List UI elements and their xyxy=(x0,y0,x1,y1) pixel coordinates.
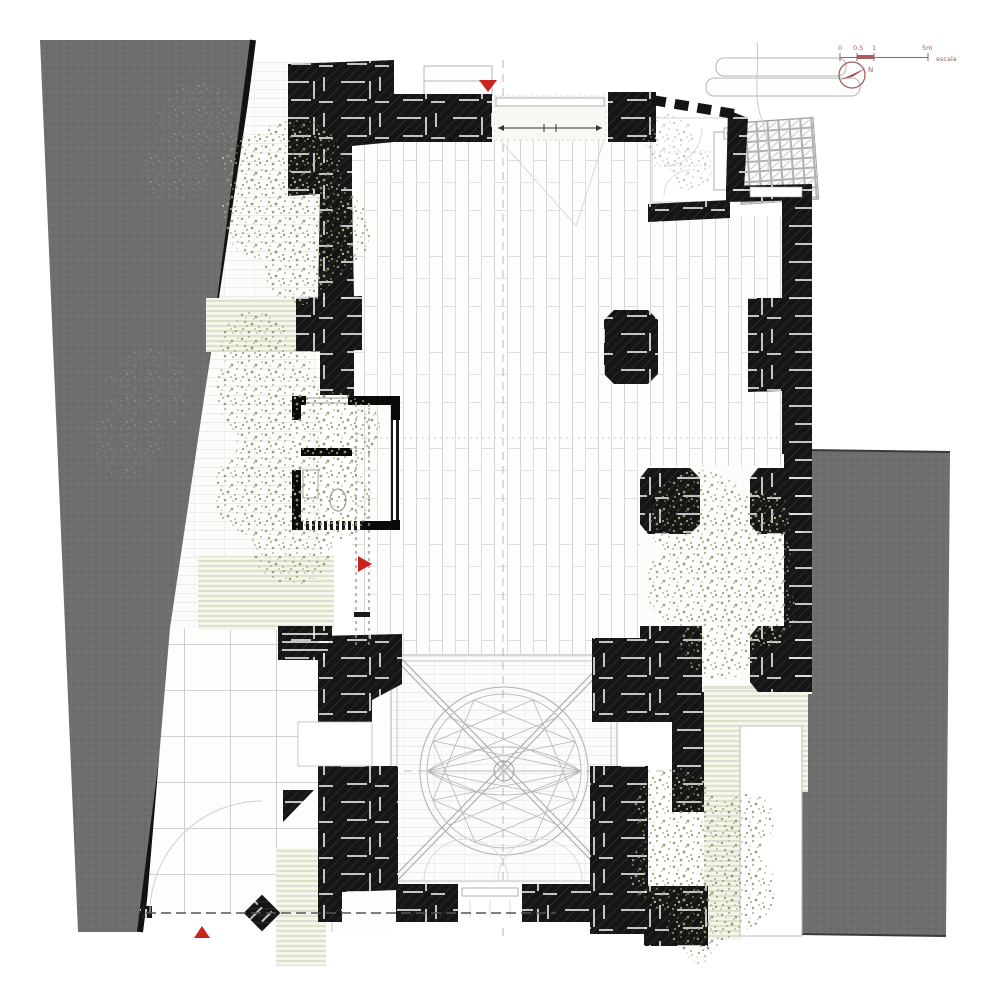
wall-grille xyxy=(391,420,400,520)
north-label: N xyxy=(868,66,873,74)
scale-caption: escala xyxy=(936,55,957,63)
floor-plan-sheet: 0 0.5 1 5m escala N xyxy=(0,0,1000,1000)
neighbor-building-east xyxy=(798,450,950,936)
scale-tick-5m: 5m xyxy=(922,44,932,52)
floor-plan-drawing: 0 0.5 1 5m escala N xyxy=(0,0,1000,1000)
scale-tick-0: 0 xyxy=(838,44,842,52)
west-arm-recess xyxy=(298,722,372,766)
south-entrance xyxy=(458,884,522,922)
scale-tick-05: 0.5 xyxy=(853,44,863,52)
scale-tick-1: 1 xyxy=(872,44,876,52)
